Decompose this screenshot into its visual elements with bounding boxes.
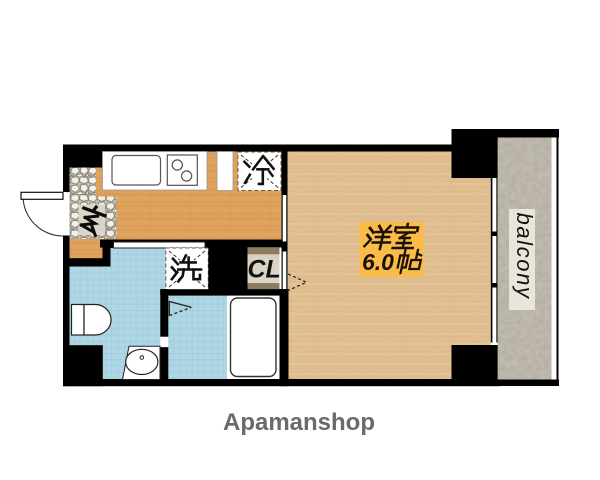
- svg-text:balcony: balcony: [512, 213, 537, 300]
- svg-text:6.0: 6.0: [362, 249, 394, 275]
- svg-text:CL: CL: [248, 256, 281, 284]
- svg-text:Apamanshop: Apamanshop: [223, 409, 375, 436]
